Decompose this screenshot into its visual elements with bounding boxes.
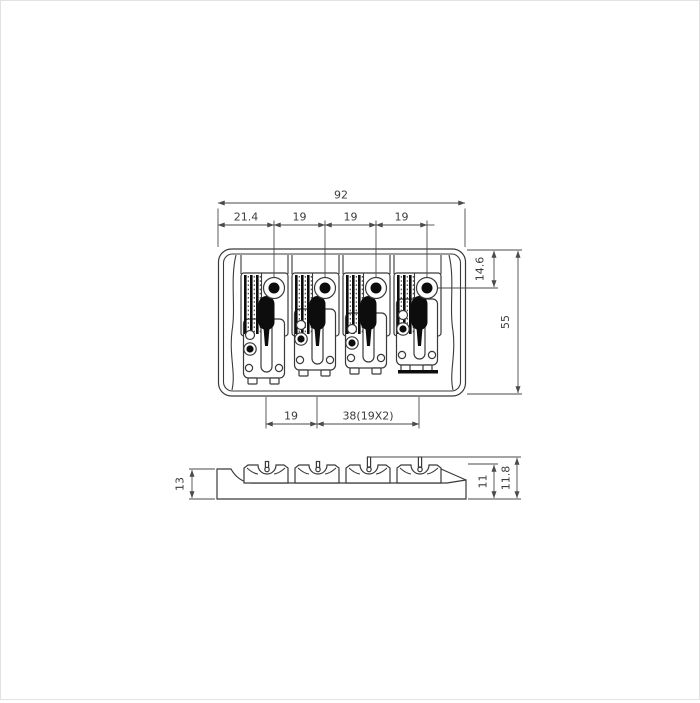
height-screw xyxy=(399,311,408,320)
side-saddle-profile-2 xyxy=(295,462,339,484)
side-saddle-profile-3 xyxy=(346,457,390,483)
side-saddle-profile-1 xyxy=(244,462,288,484)
saddle-foot xyxy=(321,370,330,376)
saddle-unit-3 xyxy=(343,255,390,374)
intonation-screw-head xyxy=(371,283,382,294)
saddle-unit-4 xyxy=(394,255,441,371)
saddle-foot xyxy=(248,378,257,384)
saddle-unit-2 xyxy=(292,255,339,376)
mount-hole xyxy=(347,354,354,361)
string-slot xyxy=(310,296,326,330)
knurl-bar xyxy=(250,275,253,334)
dim-depth-label: 55 xyxy=(499,315,512,329)
mount-hole xyxy=(398,351,405,358)
screw-tip xyxy=(367,467,371,471)
screw-tip xyxy=(265,467,269,471)
side-saddle-profile-4 xyxy=(397,457,441,483)
screw-tip xyxy=(418,467,422,471)
lock-screw-head xyxy=(246,345,253,352)
height-screw-pin xyxy=(265,462,268,468)
top-view xyxy=(219,249,466,396)
height-screw xyxy=(246,331,255,340)
string-slot xyxy=(259,296,275,330)
saddle-shadow-band xyxy=(398,370,438,374)
dim-spacing-3-label: 19 xyxy=(344,211,358,224)
dim-spacing-2-label: 19 xyxy=(293,211,307,224)
dim-plate-height-label: 13 xyxy=(174,477,187,491)
mount-hole xyxy=(296,356,303,363)
knurl-bar xyxy=(256,275,259,334)
knurl-bar xyxy=(346,275,349,334)
height-screw-pin xyxy=(316,462,319,468)
dim-saddle-pitch-label: 19 xyxy=(284,410,298,423)
lock-screw-head xyxy=(399,325,406,332)
knurl-bar xyxy=(244,275,247,334)
mount-hole xyxy=(428,351,435,358)
height-screw-pin xyxy=(367,457,370,467)
saddle-foot xyxy=(350,368,359,374)
mount-hole xyxy=(326,356,333,363)
dim-saddle-height-label: 11 xyxy=(477,475,490,489)
saddle-unit-1 xyxy=(241,255,288,384)
height-screw-pin xyxy=(418,457,421,467)
dim-spacing-1-label: 21.4 xyxy=(234,211,259,224)
knurl-bar xyxy=(409,275,412,334)
saddle-foot xyxy=(299,370,308,376)
lock-screw-head xyxy=(348,339,355,346)
dim-outer-span-label: 38(19X2) xyxy=(342,410,393,423)
screw-tip xyxy=(316,467,320,471)
string-slot xyxy=(361,296,377,330)
technical-drawing: 92 21.4 19 19 19 14.6 xyxy=(1,1,699,699)
intonation-screw-head xyxy=(320,283,331,294)
dim-saddle-height: 11 xyxy=(468,464,498,498)
saddle-foot xyxy=(372,368,381,374)
height-screw xyxy=(348,325,357,334)
knurl-bar xyxy=(307,275,310,334)
saddle-foot xyxy=(270,378,279,384)
dim-overall-width-label: 92 xyxy=(334,189,348,202)
knurl-bar xyxy=(358,275,361,334)
mount-hole xyxy=(275,364,282,371)
mount-hole xyxy=(377,354,384,361)
height-screw xyxy=(297,321,306,330)
dim-plate-height: 13 xyxy=(174,469,216,499)
intonation-screw-head xyxy=(269,283,280,294)
dim-bottom-spacings: 19 38(19X2) xyxy=(266,397,419,429)
intonation-screw-head xyxy=(422,283,433,294)
lock-screw-head xyxy=(297,335,304,342)
dim-spacing-4-label: 19 xyxy=(395,211,409,224)
mount-hole xyxy=(245,364,252,371)
dim-overall-height-label: 11.8 xyxy=(500,466,513,491)
side-view xyxy=(217,457,466,499)
side-saddle-profiles xyxy=(244,457,441,483)
side-right-chamfer xyxy=(441,469,466,480)
dim-edge-to-screw-label: 14.6 xyxy=(474,257,487,282)
string-slot xyxy=(412,296,428,330)
drawing-page: 92 21.4 19 19 19 14.6 xyxy=(0,0,700,700)
